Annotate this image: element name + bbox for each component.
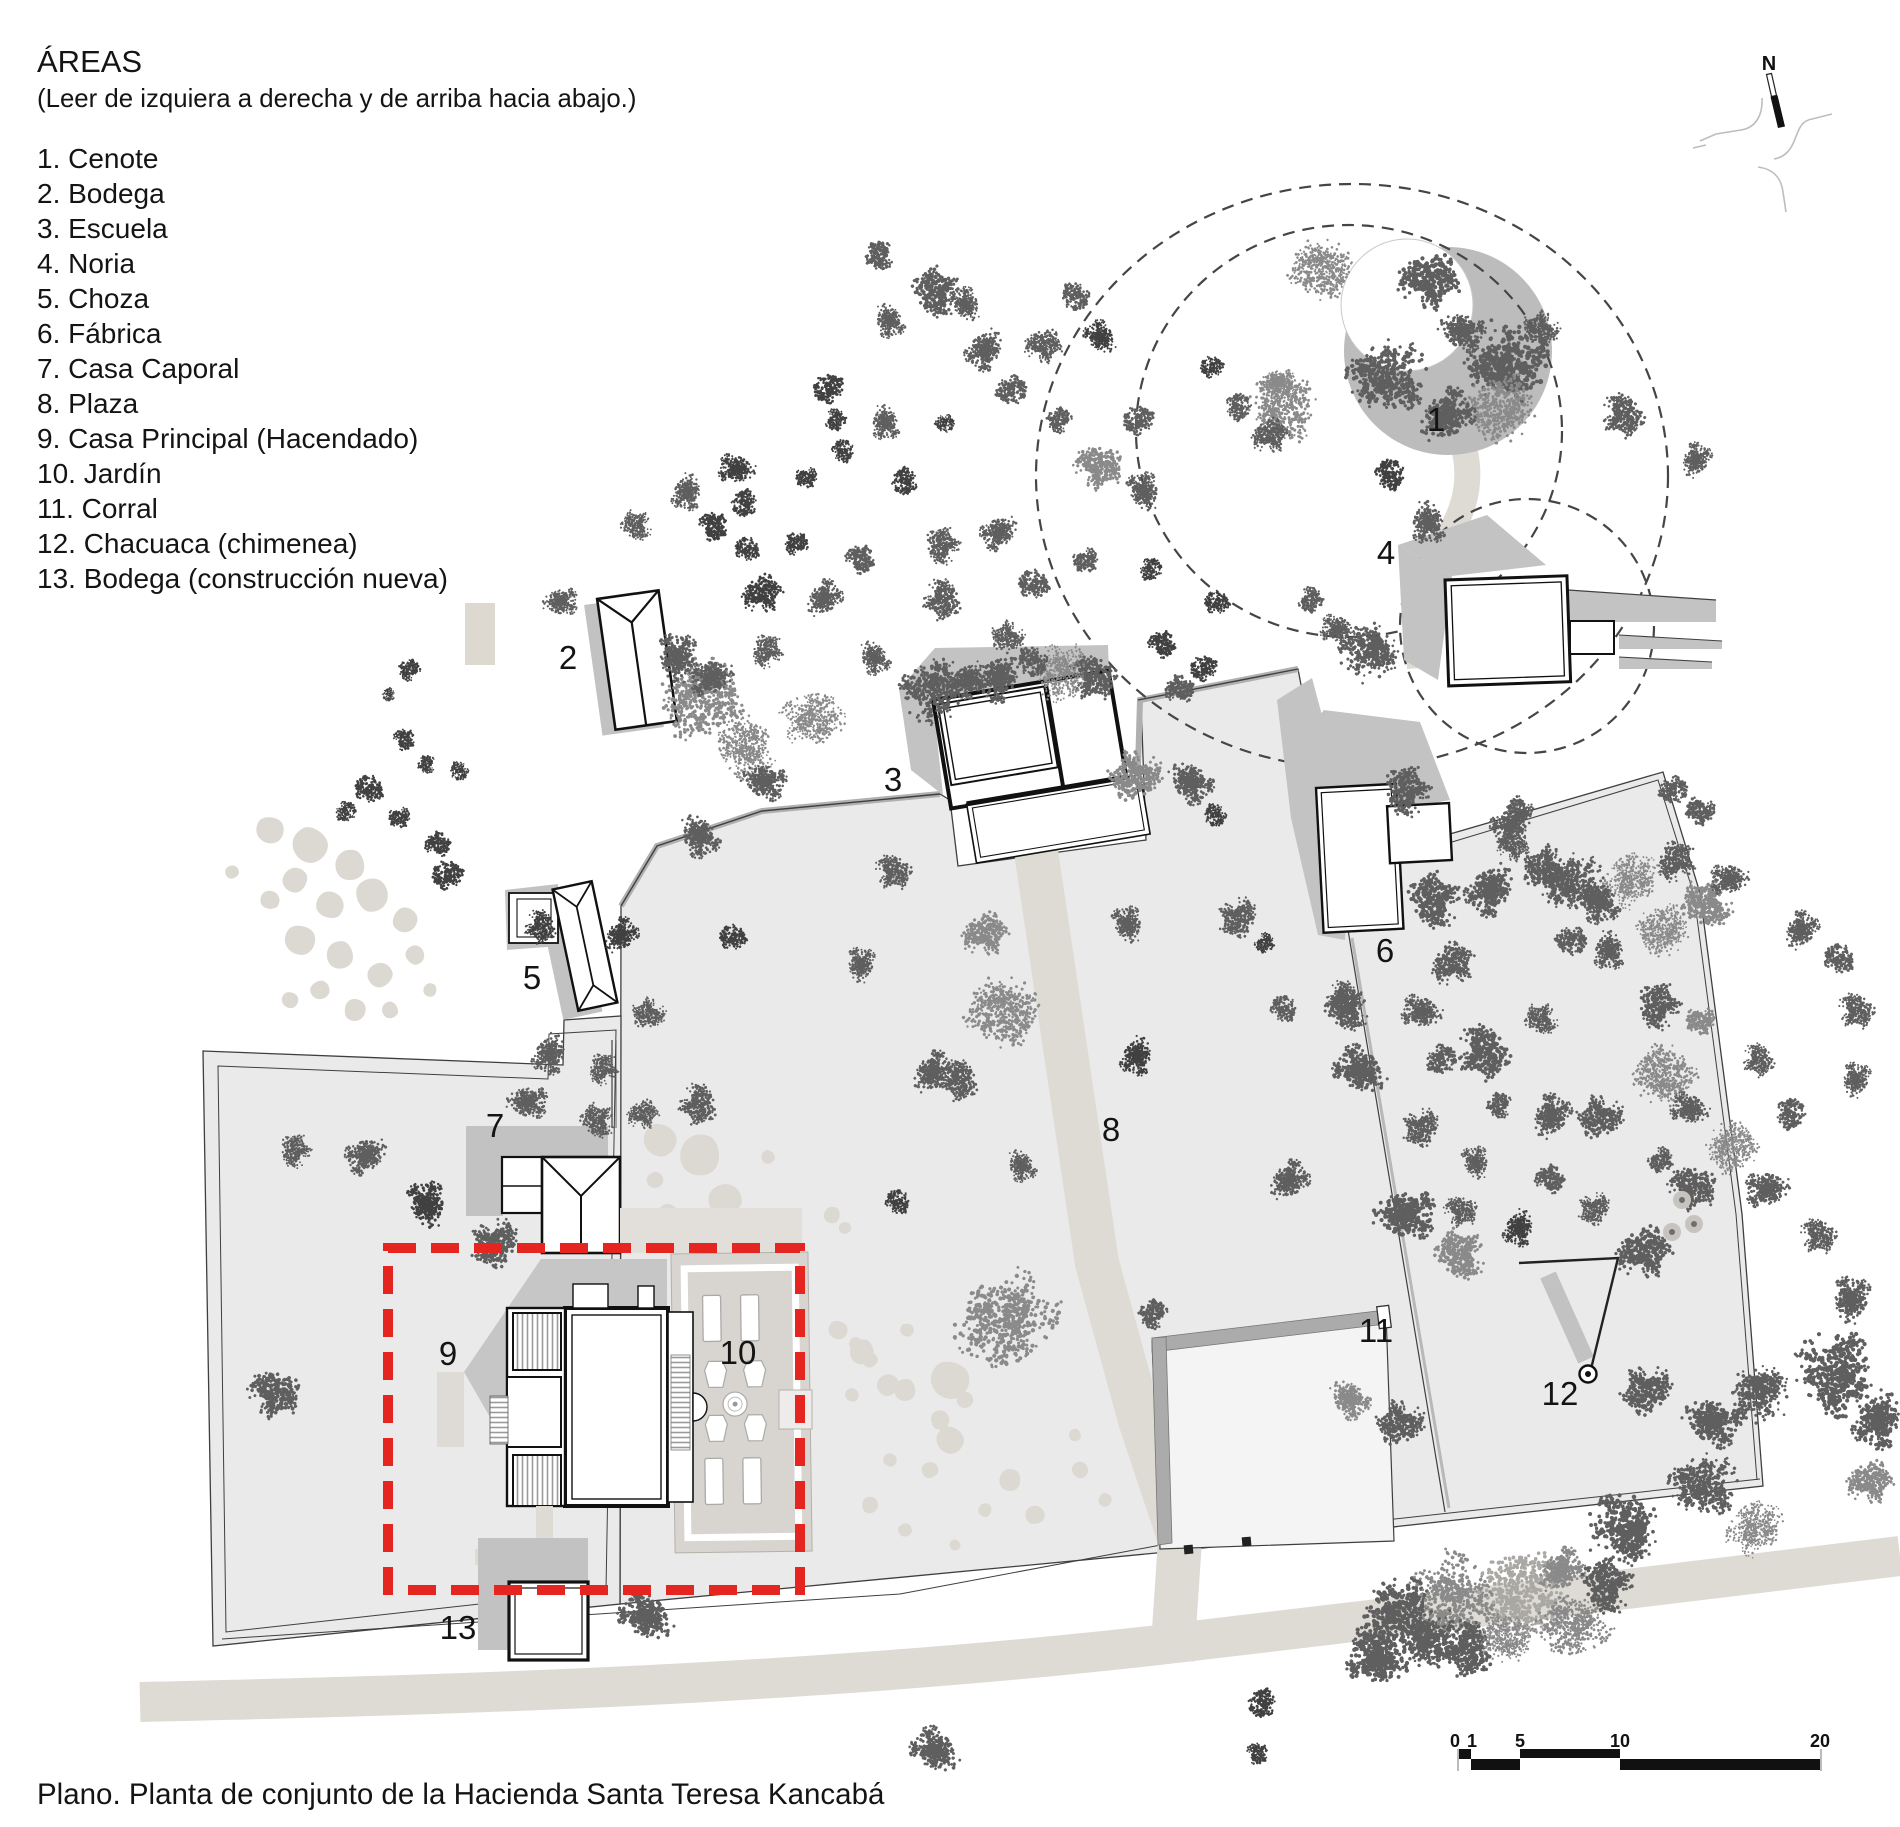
- svg-text:8: 8: [1102, 1111, 1120, 1148]
- svg-text:1: 1: [1427, 401, 1445, 438]
- svg-text:2. Bodega: 2. Bodega: [37, 178, 165, 209]
- svg-text:5: 5: [1515, 1731, 1525, 1751]
- svg-text:N: N: [1762, 53, 1776, 75]
- svg-text:11: 11: [1359, 1312, 1393, 1349]
- svg-text:4: 4: [1377, 534, 1395, 571]
- svg-text:9: 9: [439, 1335, 457, 1372]
- svg-text:2: 2: [559, 639, 577, 676]
- svg-text:11. Corral: 11. Corral: [37, 493, 158, 524]
- svg-text:13. Bodega (construcción nueva: 13. Bodega (construcción nueva): [37, 563, 448, 594]
- svg-text:4. Noria: 4. Noria: [37, 248, 135, 279]
- svg-text:5. Choza: 5. Choza: [37, 283, 149, 314]
- svg-text:3: 3: [884, 761, 902, 798]
- svg-text:1. Cenote: 1. Cenote: [37, 143, 158, 174]
- svg-text:6: 6: [1376, 932, 1394, 969]
- svg-text:10. Jardín: 10. Jardín: [37, 458, 162, 489]
- svg-text:7. Casa Caporal: 7. Casa Caporal: [37, 353, 239, 384]
- svg-text:ÁREAS: ÁREAS: [37, 44, 142, 79]
- svg-text:6. Fábrica: 6. Fábrica: [37, 318, 162, 349]
- svg-text:5: 5: [523, 959, 541, 996]
- svg-text:20: 20: [1810, 1731, 1830, 1751]
- svg-text:12: 12: [1542, 1375, 1579, 1412]
- svg-text:13: 13: [440, 1609, 477, 1646]
- svg-text:Plano. Planta de conjunto de l: Plano. Planta de conjunto de la Hacienda…: [37, 1778, 885, 1811]
- svg-text:(Leer de izquiera a derecha y: (Leer de izquiera a derecha y de arriba …: [37, 85, 636, 113]
- svg-text:1: 1: [1467, 1731, 1477, 1751]
- svg-text:12. Chacuaca (chimenea): 12. Chacuaca (chimenea): [37, 528, 358, 559]
- svg-text:10: 10: [720, 1334, 757, 1371]
- svg-text:7: 7: [486, 1107, 504, 1144]
- svg-text:8. Plaza: 8. Plaza: [37, 388, 139, 419]
- svg-text:3. Escuela: 3. Escuela: [37, 213, 168, 244]
- svg-text:10: 10: [1610, 1731, 1630, 1751]
- svg-text:0: 0: [1450, 1731, 1460, 1751]
- svg-text:9. Casa Principal (Hacendado): 9. Casa Principal (Hacendado): [37, 423, 418, 454]
